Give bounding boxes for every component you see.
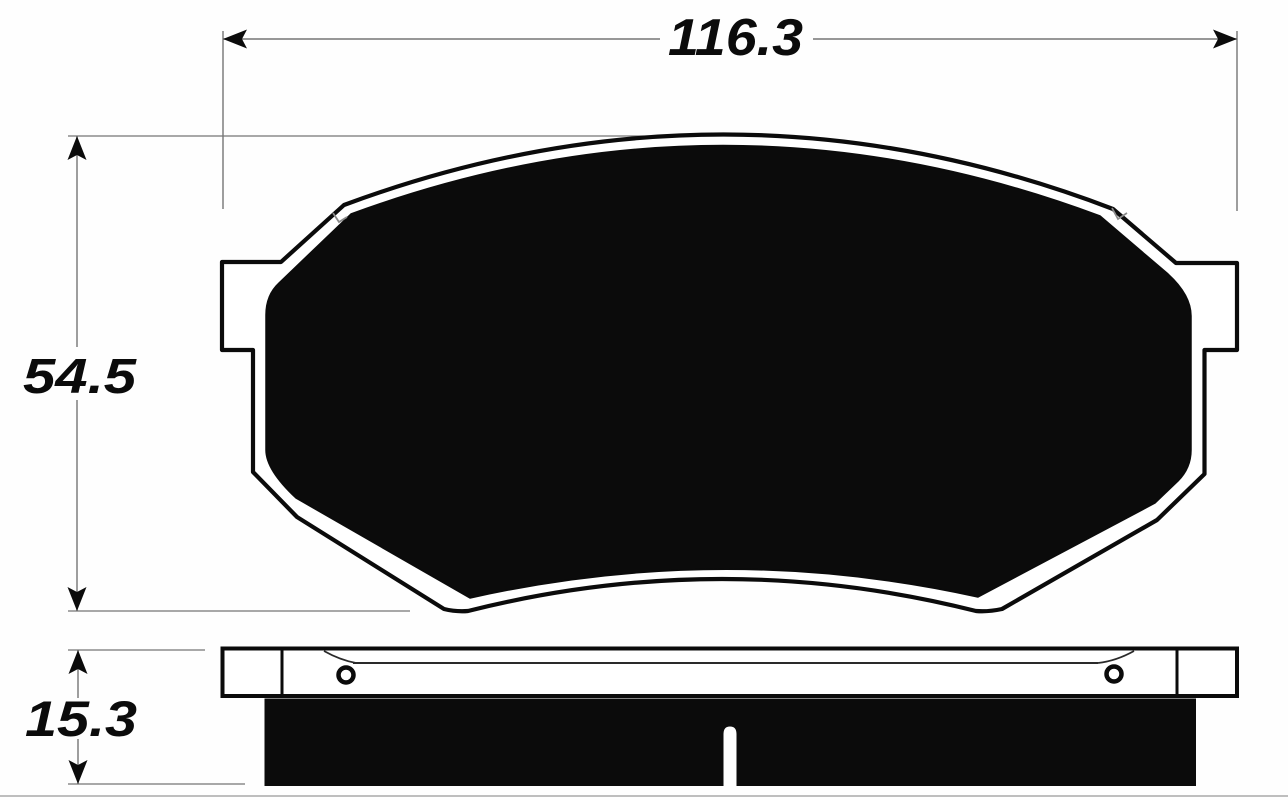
svg-text:54.5: 54.5 (23, 350, 137, 404)
svg-text:15.3: 15.3 (25, 691, 137, 747)
svg-text:116.3: 116.3 (668, 9, 803, 67)
